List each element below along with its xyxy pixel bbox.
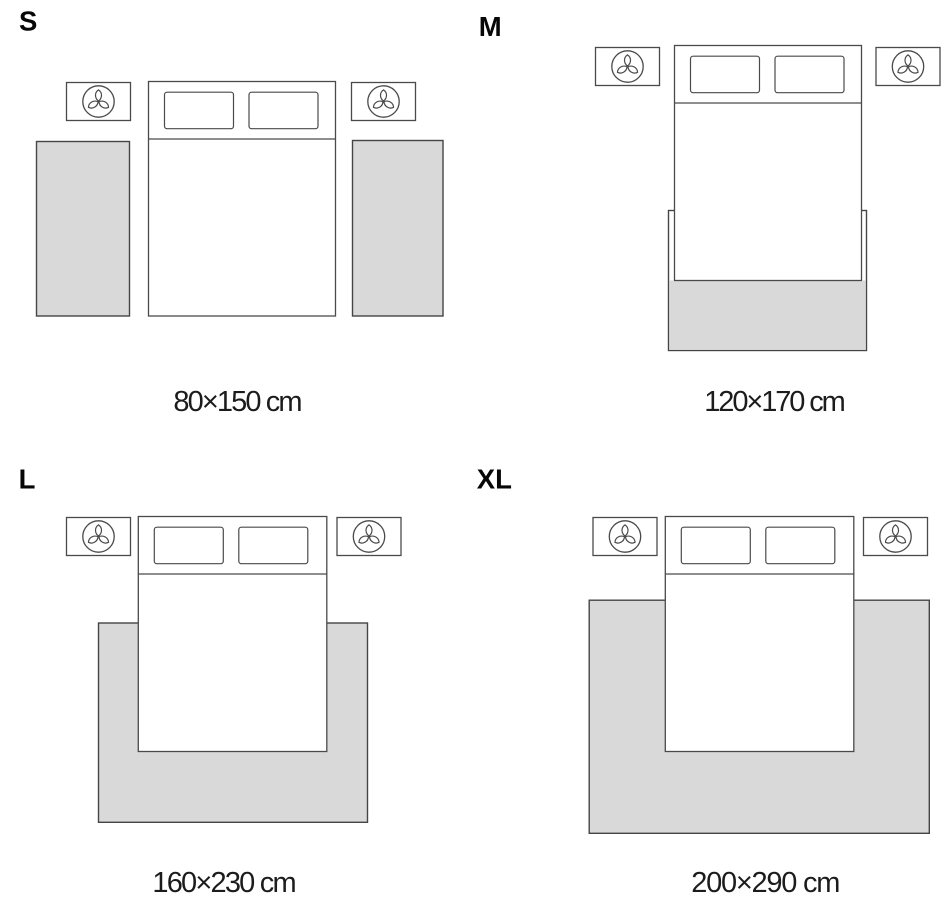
svg-text:L: L — [19, 464, 36, 495]
svg-text:200×290 cm: 200×290 cm — [691, 867, 839, 899]
svg-text:S: S — [19, 5, 37, 36]
svg-text:XL: XL — [477, 464, 512, 495]
svg-text:M: M — [479, 11, 502, 42]
svg-text:120×170 cm: 120×170 cm — [704, 386, 844, 418]
svg-text:160×230 cm: 160×230 cm — [152, 867, 295, 899]
svg-text:80×150 cm: 80×150 cm — [173, 386, 301, 418]
